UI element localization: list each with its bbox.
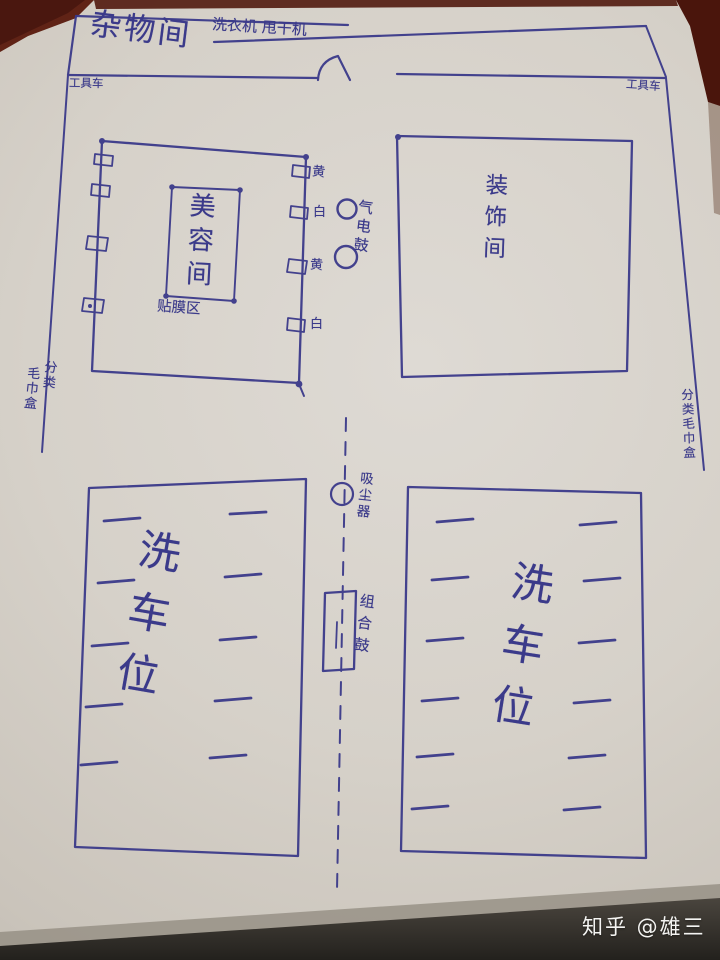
- wall-hook-squares-right: [287, 165, 310, 332]
- wash-bay-left-outline: [75, 479, 306, 856]
- tool-cart-right-label: 工具车: [626, 78, 661, 92]
- towel-sort-box-left-label-col1: 分类: [39, 359, 56, 390]
- towel-sort-box-right-label: 分类毛巾盒: [680, 388, 696, 461]
- combo-reel-icon: [323, 591, 356, 671]
- beauty-room-label: 美容间: [181, 191, 214, 294]
- photo-of-hand-drawn-floorplan: 杂物间 洗衣机 甩干机 工具车 工具车 美容间 贴膜区 黄 白 黄 白 气电鼓 …: [0, 0, 720, 960]
- hose-hook-label-3: 黄: [310, 259, 324, 274]
- tool-cart-left-label: 工具车: [69, 77, 104, 90]
- hose-hook-label-1: 黄: [311, 165, 325, 180]
- hose-hook-label-4: 白: [310, 318, 323, 332]
- center-dashed-line: [337, 418, 346, 890]
- decoration-room-label: 装饰间: [479, 173, 506, 268]
- hose-hook-label-2: 白: [313, 206, 326, 220]
- outer-walls: [42, 16, 704, 470]
- zhihu-watermark: 知乎 @雄三: [582, 911, 706, 941]
- film-area-label: 贴膜区: [157, 300, 201, 318]
- door-swing-icon: [318, 56, 350, 80]
- vacuum-cleaner-icon: [331, 483, 353, 505]
- decoration-room-outline: [395, 134, 632, 377]
